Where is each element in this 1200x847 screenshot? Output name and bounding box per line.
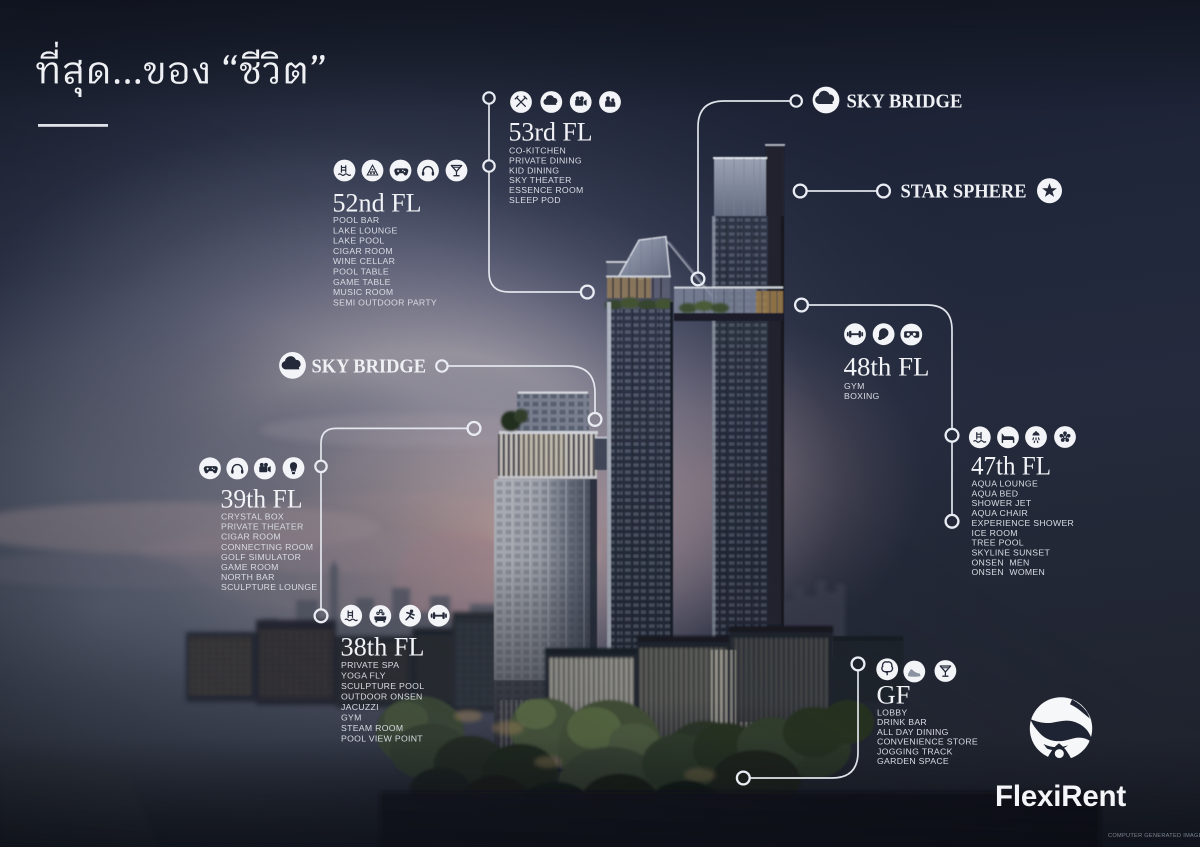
svg-text:47th FL: 47th FL	[971, 451, 1051, 481]
svg-text:38th FL: 38th FL	[341, 632, 425, 662]
svg-text:STAR SPHERE: STAR SPHERE	[901, 182, 1027, 203]
svg-text:SKY BRIDGE: SKY BRIDGE	[312, 357, 427, 378]
svg-text:53rd FL: 53rd FL	[509, 117, 593, 147]
svg-text:39th FL: 39th FL	[221, 484, 303, 514]
svg-text:COMPUTER GENERATED IMAGERY: COMPUTER GENERATED IMAGERY	[1108, 833, 1200, 839]
svg-text:GF: GF	[877, 680, 911, 710]
svg-text:48th FL: 48th FL	[844, 352, 930, 382]
svg-text:52nd FL: 52nd FL	[333, 188, 422, 218]
svg-text:FlexiRent: FlexiRent	[995, 780, 1126, 813]
svg-text:SKY BRIDGE: SKY BRIDGE	[847, 92, 963, 113]
